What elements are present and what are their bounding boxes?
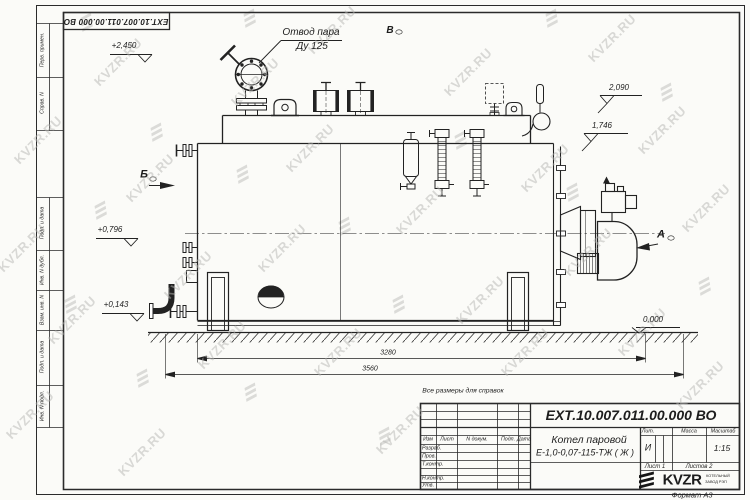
col-header-izm: Изм	[423, 437, 433, 442]
side-column-label: Инв. N подл.	[40, 391, 45, 421]
watermark-logo-marks	[64, 8, 711, 445]
drawing-linework	[0, 0, 750, 500]
elevation-marks	[96, 55, 680, 334]
scale-header: Масштаб	[711, 429, 736, 434]
elevation-label-2090: 2,090	[609, 84, 629, 92]
row-label-prov: Пров.	[422, 454, 436, 459]
kvzr-logo-subtitle-1: КОТЕЛЬНЫЙ	[706, 475, 730, 479]
side-column-label: Инв. N дубл.	[40, 255, 45, 285]
mass-header: Масса	[681, 429, 697, 434]
format-label: Формат А3	[671, 491, 712, 499]
reference-note: Все размеры для справок	[422, 389, 503, 396]
elevation-label-0143: +0,143	[104, 301, 129, 309]
sheets-total: Листов 2	[686, 464, 713, 470]
col-header-data: Дата	[517, 437, 531, 442]
steam-valve	[221, 46, 268, 116]
col-header-list: Лист	[440, 437, 454, 442]
steam-outlet-callout-line2: Ду 125	[296, 42, 328, 52]
dimension-label-3280: 3280	[380, 350, 396, 357]
sheet-number: Лист 1	[645, 464, 665, 470]
title-product-name: Котел паровой	[551, 435, 626, 446]
view-label-a: А	[657, 230, 665, 241]
title-product-code: Е-1,0-0,07-115-ТЖ ( Ж )	[536, 449, 634, 458]
side-column-label: Взам. инв. N	[40, 295, 45, 325]
front-instruments	[400, 130, 489, 197]
row-label-nkontr: Н.контр.	[422, 476, 444, 481]
kvzr-logo-subtitle-2: ЗАВОД РЭП	[705, 481, 727, 485]
lit-value: И	[645, 444, 651, 453]
lit-header: Лит.	[642, 429, 654, 434]
top-equipment	[221, 46, 551, 137]
kvzr-logo-text: KVZR	[663, 473, 702, 488]
steam-outlet-callout-line1: Отвод пара	[282, 28, 339, 38]
burner	[557, 166, 638, 308]
view-label-b: Б	[140, 170, 148, 181]
row-label-utv: Утв.	[422, 483, 434, 488]
side-column-label: Справ. N	[40, 92, 45, 114]
elevation-label-1746: 1,746	[592, 122, 612, 130]
scale-value: 1:15	[714, 444, 731, 453]
view-label-v: В	[386, 26, 393, 36]
dimension-label-3560: 3560	[362, 366, 378, 373]
top-corner-stamp-number: ЕХТ.10.007.011.00.000 ВО	[64, 17, 169, 25]
col-header-doc: N докум.	[466, 437, 487, 442]
ground-line	[148, 333, 698, 343]
drawing-sheet: KVZR.RU KVZR.RU KVZR.RU KVZR.RU KVZR.RU …	[0, 0, 750, 500]
col-header-podp: Подп.	[501, 437, 515, 442]
elevation-label-2450: +2,450	[112, 42, 137, 50]
title-doc-number: ЕХТ.10.007.011.00.000 ВО	[546, 408, 717, 422]
row-label-tkontr: Т.контр.	[422, 462, 443, 467]
side-column-label: Подп. и дата	[40, 207, 45, 239]
elevation-label-0000: 0,000	[643, 316, 663, 324]
left-wall-fittings	[150, 145, 198, 319]
boiler-body	[185, 116, 665, 331]
row-label-razrab: Разраб.	[422, 446, 441, 451]
side-column-label: Подп. и дата	[40, 341, 45, 373]
elevation-label-0796: +0,796	[98, 226, 123, 234]
side-column-label: Перв. примен.	[40, 33, 45, 67]
kvzr-logo-mark	[639, 472, 654, 489]
